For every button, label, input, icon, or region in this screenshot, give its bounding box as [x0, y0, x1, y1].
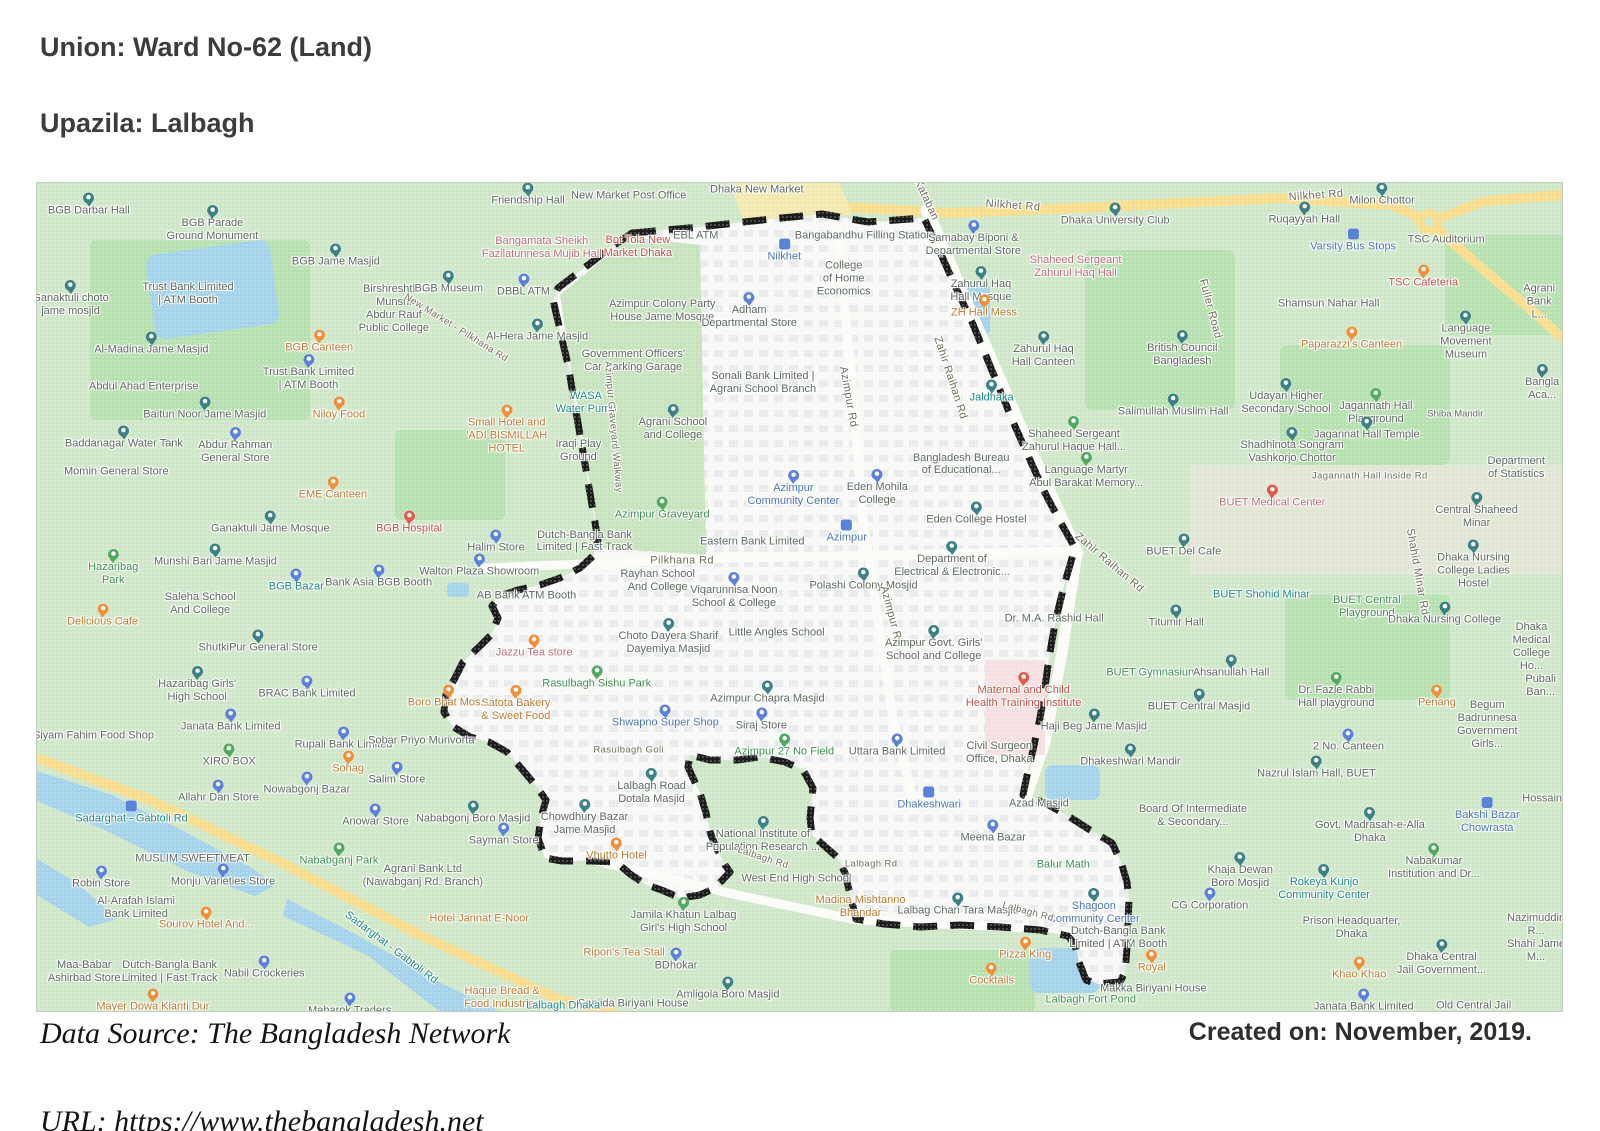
- map-label: Jaldhaka: [970, 379, 1014, 404]
- map-label: AB Bank ATM Booth: [477, 590, 576, 603]
- map-label: Kataban: [911, 183, 941, 222]
- map-label-text: Madina Mishtanno Bhandar: [816, 894, 906, 920]
- map-label: BGB Parade Ground Monument: [167, 205, 259, 243]
- map-label: Bangamata Sheikh Fazilatunnesa Mujib Hal…: [482, 235, 602, 261]
- map-label: Polashi Colony Mosjid: [809, 568, 917, 593]
- map-label: Dhaka University Club: [1061, 203, 1170, 228]
- map-label: Udayan Higher Secondary School: [1241, 378, 1330, 416]
- map-label-text: Agrani Bank Ltd (Nawabganj Rd. Branch): [363, 863, 483, 889]
- map-label: Nazrul Islam Hall, BUET: [1257, 755, 1376, 780]
- poi-pin-icon: [1287, 427, 1298, 438]
- poi-pin-icon: [213, 779, 224, 790]
- poi-pin-icon: [303, 354, 314, 365]
- map-label: West End High School: [742, 873, 852, 886]
- poi-pin-icon: [1267, 484, 1278, 495]
- map-label: Saleha School And College: [165, 591, 236, 617]
- poi-pin-icon: [314, 329, 325, 340]
- map-label: Little Angles School: [729, 627, 825, 640]
- map-label: Mayer Dowa Klanti Dur: [96, 989, 209, 1011]
- transit-badge-icon: [841, 519, 852, 530]
- poi-pin-icon: [373, 565, 384, 576]
- map-label: XIRO BOX: [203, 743, 256, 768]
- map-label: Jazzu Tea store: [496, 634, 573, 659]
- map-label: Sayman Store: [469, 822, 539, 847]
- map-label: Ganaktuli Jame Mosque: [211, 511, 330, 536]
- map-label-text: Small Hotel and 'ADI BISMILLAH HOTEL: [466, 416, 547, 455]
- map-label-text: Azimpur: [827, 531, 867, 544]
- map-label: Shagoon Community Center: [1048, 888, 1140, 926]
- map-label: Government Officers' Car Parking Garage: [582, 348, 685, 374]
- map-label-text: Shamsun Nahar Hall: [1278, 297, 1380, 310]
- map-label: Rokeya Kunjo Community Center: [1278, 864, 1370, 902]
- poi-pin-icon: [265, 511, 276, 522]
- map-label-text: Department of Statistics: [1488, 455, 1545, 481]
- map-label: Lalbagh Fort Pond: [1046, 994, 1137, 1007]
- poi-pin-icon: [532, 319, 543, 330]
- map-label: Bangla Aca...: [1525, 364, 1559, 402]
- map-label-text: Hotel Jannat E-Noor: [429, 913, 529, 926]
- poi-pin-icon: [968, 220, 979, 231]
- map-label: Friendship Hall: [491, 183, 564, 208]
- map-label: Bot Tola New Market Dhaka: [604, 234, 672, 260]
- map-label-text: Dr. M.A. Rashid Hall: [1005, 612, 1104, 625]
- map-label: Zahurul Haq Hall Canteen: [1012, 331, 1076, 369]
- poi-pin-icon: [1088, 709, 1099, 720]
- map-label: 2 No. Canteen: [1313, 729, 1384, 754]
- poi-pin-icon: [1346, 327, 1357, 338]
- poi-pin-icon: [370, 803, 381, 814]
- map-label: Shadhinota Songram Vashkorjo Chottor: [1240, 427, 1343, 465]
- map-label-text: Shiba Mandir: [1427, 408, 1483, 419]
- map-label: Bangladesh Bureau of Educational...: [913, 452, 1010, 478]
- poi-pin-icon: [670, 948, 681, 959]
- map-label-text: EBL ATM: [673, 230, 718, 243]
- map-label: Rasulbagh Goli: [593, 745, 664, 756]
- map-label: College of Home Economics: [817, 260, 871, 299]
- source-block: Data Source: The Bangladesh Network URL:…: [40, 1012, 511, 1131]
- map-label: Agrani Bank Ltd (Nawabganj Rd. Branch): [363, 863, 483, 889]
- map-label-text: Nilkhet: [767, 250, 801, 263]
- map-label-text: Bangladesh Bureau of Educational...: [913, 452, 1010, 478]
- map-label-text: Sadarghat - Gabtoli Rd: [342, 909, 440, 987]
- map-label: Bangabandhu Filling Station: [795, 230, 933, 243]
- poi-pin-icon: [1068, 416, 1079, 427]
- poi-pin-icon: [96, 865, 107, 876]
- map-label-text: AB Bank ATM Booth: [477, 590, 576, 603]
- map-label-text: Bangamata Sheikh Fazilatunnesa Mujib Hal…: [482, 235, 602, 261]
- map-label-text: Trust Bank Limited | ATM Booth: [142, 281, 233, 307]
- poi-pin-icon: [225, 709, 236, 720]
- map-label-text: Pubali Ban...: [1525, 673, 1556, 699]
- poi-pin-icon: [892, 734, 903, 745]
- map-label: BGB Darbar Hall: [48, 192, 130, 217]
- map-label: Azimpur: [827, 519, 867, 544]
- map-label: BRAC Bank Limited: [258, 676, 355, 701]
- map-label-text: Rayhan School And College: [620, 568, 695, 594]
- map-label-text: Maa-Babar Ashirbad Store: [48, 959, 121, 985]
- map-label: Hossain...: [1522, 793, 1562, 806]
- poi-pin-icon: [301, 676, 312, 687]
- map-label: Azimpur Colony Party House Jame Mosque: [609, 298, 715, 324]
- poi-pin-icon: [218, 864, 229, 875]
- poi-pin-icon: [201, 907, 212, 918]
- map-label: Language Movement Museum: [1418, 311, 1514, 362]
- poi-pin-icon: [1331, 672, 1342, 683]
- map-label: Choto Dayera Sharif Dayemiya Masjid: [619, 618, 719, 656]
- map-label-text: Azimpur Colony Party House Jame Mosque: [609, 298, 715, 324]
- map-label: Lalbag Chan Tara Masjid: [897, 893, 1018, 918]
- poi-pin-icon: [65, 280, 76, 291]
- map-label-text: New Market Post Office: [571, 190, 686, 203]
- map-label: Dhaka Medical College Ho...: [1513, 621, 1551, 673]
- poi-pin-icon: [953, 893, 964, 904]
- map-label: Siyam Fahim Food Shop: [37, 730, 154, 743]
- map-label: Shwapno Super Shop: [612, 705, 719, 730]
- map-label-text: Jagannath Hall Inside Rd: [1312, 471, 1428, 482]
- map-label-text: College of Home Economics: [817, 260, 871, 299]
- map-label: Sadarghat - Gabtoli Rd: [342, 909, 440, 987]
- map-label: Lalbagh Dhaka: [526, 1000, 600, 1011]
- map-label: Munshi Bari Jame Masjid: [154, 544, 277, 569]
- poi-pin-icon: [510, 685, 521, 696]
- map-label: Dhaka Central Jail Government...: [1397, 939, 1486, 977]
- poi-pin-icon: [1436, 939, 1447, 950]
- poi-pin-icon: [443, 685, 454, 696]
- poi-pin-icon: [1194, 689, 1205, 700]
- map-label-text: Ripon's Tea Stall: [583, 947, 664, 960]
- poi-pin-icon: [404, 511, 415, 522]
- poi-pin-icon: [333, 842, 344, 853]
- map-label: Monju Varieties Store: [171, 864, 275, 889]
- map-label: Nazimuddin R... Shahi Jame M...: [1507, 912, 1562, 964]
- poi-pin-icon: [147, 989, 158, 1000]
- poi-pin-icon: [762, 681, 773, 692]
- map-label: Azimpur Graveyard: [615, 497, 710, 522]
- map-label: Adham Departmental Store: [701, 292, 796, 330]
- poi-pin-icon: [744, 292, 755, 303]
- map-label: Khao Khao: [1332, 956, 1386, 981]
- map-label-text: Old Central Jail: [1436, 1000, 1511, 1011]
- poi-pin-icon: [1343, 729, 1354, 740]
- poi-pin-icon: [1110, 203, 1121, 214]
- map-label: Maa-Babar Ashirbad Store: [48, 959, 121, 985]
- poi-pin-icon: [1418, 265, 1429, 276]
- map-label-text: Civil Surgeon Office, Dhaka: [966, 741, 1032, 767]
- map-label: Pizza King: [999, 936, 1051, 961]
- map-label: Viqarunnisa Noon School & College: [690, 572, 777, 610]
- map-label: Eden Mohila College: [847, 469, 908, 507]
- poi-pin-icon: [975, 266, 986, 277]
- map-label: BGB Museum: [415, 271, 483, 296]
- map-label: Pilkhana Rd: [650, 555, 714, 568]
- poi-pin-icon: [529, 634, 540, 645]
- map-label: Shamsun Nahar Hall: [1278, 297, 1380, 310]
- map-label: Department of Statistics: [1488, 455, 1545, 481]
- map-canvas[interactable]: BGB Darbar HallBGB Parade Ground Monumen…: [37, 183, 1562, 1011]
- map-label: ShutkiPur General Store: [199, 629, 318, 654]
- map-label-text: Zahir Raihan Rd: [931, 335, 970, 421]
- map-label-text: Azad Masjid: [1009, 798, 1069, 811]
- poi-pin-icon: [858, 568, 869, 579]
- map-label: Jagannath Hall Inside Rd: [1312, 471, 1428, 482]
- map-label-text: Lalbagh Rd: [845, 859, 898, 870]
- poi-pin-icon: [1428, 843, 1439, 854]
- map-label: Samabay Biponi & Departmental Store: [926, 220, 1021, 258]
- map-label: Nabil Crockeries: [224, 955, 305, 980]
- poi-pin-icon: [986, 963, 997, 974]
- map-label-text: Bot Tola New Market Dhaka: [604, 234, 672, 260]
- map-label: Prison Headquarter, Dhaka: [1303, 915, 1401, 941]
- map-label: National Institute of Population Researc…: [706, 816, 820, 854]
- map-label: Jamila Khatun Lalbag Girl's High School: [631, 897, 737, 935]
- map-label: Cocktails: [969, 963, 1014, 988]
- map-label-text: Prison Headquarter, Dhaka: [1303, 915, 1401, 941]
- map-label: Dhaka New Market: [710, 184, 804, 197]
- map-label: Titumir Hall: [1149, 604, 1204, 629]
- poi-pin-icon: [663, 618, 674, 629]
- poi-pin-icon: [330, 243, 341, 254]
- map-label-text: Hossain...: [1522, 793, 1562, 806]
- map-label: ZH Hall Mess: [951, 295, 1017, 320]
- poi-pin-icon: [779, 734, 790, 745]
- poi-pin-icon: [391, 762, 402, 773]
- poi-pin-icon: [667, 404, 678, 415]
- poi-pin-icon: [979, 295, 990, 306]
- map-label-text: Eastern Bank Limited: [700, 535, 805, 548]
- map-label: Bakshi Bazar Chowrasta: [1450, 797, 1525, 835]
- map-label: Central Shaheed Minar: [1434, 492, 1519, 530]
- map-label-text: Sadarghat - Gabtoli Rd: [75, 813, 188, 826]
- map-label-text: Rasulbagh Goli: [593, 745, 664, 756]
- map-label: Ripon's Tea Stall: [583, 947, 664, 960]
- poi-pin-icon: [1377, 183, 1388, 194]
- map-label: Hazaribag Park: [88, 549, 138, 587]
- poi-pin-icon: [210, 544, 221, 555]
- map-label: Anowar Store: [342, 803, 409, 828]
- map-labels-layer: BGB Darbar HallBGB Parade Ground Monumen…: [37, 183, 1562, 1011]
- poi-pin-icon: [230, 427, 241, 438]
- map-label: Salimullah Muslim Hall: [1118, 393, 1229, 418]
- poi-pin-icon: [660, 705, 671, 716]
- poi-pin-icon: [1364, 807, 1375, 818]
- map-label: Robin Store: [72, 865, 130, 890]
- poi-pin-icon: [591, 666, 602, 677]
- map-label: Lalbagh Rd: [845, 859, 898, 870]
- poi-pin-icon: [788, 470, 799, 481]
- map-label-text: West End High School: [742, 873, 852, 886]
- map-label-text: Bakshi Bazar Chowrasta: [1450, 809, 1525, 835]
- created-on-line: Created on: November, 2019.: [1189, 1018, 1532, 1047]
- poi-pin-icon: [1280, 378, 1291, 389]
- map-label: Pubali Ban...: [1525, 673, 1556, 699]
- poi-pin-icon: [338, 726, 349, 737]
- poi-pin-icon: [872, 469, 883, 480]
- map-label: Abdur Rahman General Store: [198, 427, 272, 465]
- poi-pin-icon: [327, 477, 338, 488]
- map-label-text: Board Of Intermediate & Secondary...: [1139, 803, 1247, 829]
- poi-pin-icon: [1354, 956, 1365, 967]
- poi-pin-icon: [83, 192, 94, 203]
- poi-pin-icon: [253, 629, 264, 640]
- map-label-text: Dhaka Medical College Ho...: [1513, 621, 1551, 673]
- map-label-text: Bangabandhu Filling Station: [795, 230, 933, 243]
- map-label: Board Of Intermediate & Secondary...: [1139, 803, 1247, 829]
- map-label: Ahsanullah Hall: [1193, 654, 1269, 679]
- map-label: Boro Bhat Mos...: [408, 685, 490, 710]
- url-line: URL: https://www.thebangladesh.net: [40, 1105, 484, 1131]
- map-label: Agrani School and College: [639, 404, 708, 442]
- map-label: TSC Auditorium: [1408, 234, 1485, 247]
- map-label-text: Balur Math: [1037, 859, 1090, 872]
- poi-pin-icon: [722, 977, 733, 988]
- map-label: Civil Surgeon Office, Dhaka: [966, 741, 1032, 767]
- map-label: Govt. Madrasah-e-Alia Dhaka: [1315, 807, 1425, 845]
- poi-pin-icon: [579, 799, 590, 810]
- map-label: Azimpur Rd: [837, 366, 860, 429]
- map-label-text: Dutch-Bangla Bank Limited | Fast Track: [122, 959, 218, 985]
- poi-pin-icon: [474, 554, 485, 565]
- map-label-text: Siyam Fahim Food Shop: [37, 730, 154, 743]
- map-label: Bank Asia BGB Booth: [325, 565, 432, 590]
- map-label: Al-Hera Jame Masjid: [486, 319, 588, 344]
- map-label: Sourov Hotel And...: [159, 907, 254, 932]
- poi-pin-icon: [646, 768, 657, 779]
- map-label: Ruqayyah Hall: [1268, 202, 1340, 227]
- map-label-text: Little Angles School: [729, 627, 825, 640]
- map-label: TSC Cafeteria: [1388, 265, 1458, 290]
- map-label: Azimpur Govt. Girls' School and College: [885, 625, 982, 663]
- map-label: Dhaka Nursing College Ladies Hostel: [1429, 539, 1517, 590]
- map-label: BUET Shohid Minar: [1213, 589, 1310, 602]
- map-label: BGB Canteen: [285, 329, 353, 354]
- map-label: Trust Bank Limited | ATM Booth: [142, 281, 233, 307]
- map-label: Uttara Bank Limited: [849, 734, 946, 759]
- poi-pin-icon: [1537, 364, 1548, 375]
- poi-pin-icon: [1468, 539, 1479, 550]
- map-label: Lalbagh Road Dotala Masjid: [617, 768, 686, 806]
- map-label: British Council Bangladesh: [1147, 330, 1217, 368]
- transit-badge-icon: [924, 787, 935, 798]
- poi-pin-icon: [1235, 852, 1246, 863]
- transit-badge-icon: [779, 238, 790, 249]
- map-label: Eden College Hostel: [926, 502, 1026, 527]
- poi-pin-icon: [1319, 864, 1330, 875]
- map-label: Niloy Food: [313, 397, 366, 422]
- poi-pin-icon: [946, 541, 957, 552]
- map-label: Eastern Bank Limited: [700, 535, 805, 548]
- map-label-text: Government Officers' Car Parking Garage: [582, 348, 685, 374]
- map-label-text: Begum Badrunnesa Government Girls...: [1450, 699, 1525, 751]
- poi-pin-icon: [971, 502, 982, 513]
- poi-pin-icon: [118, 426, 129, 437]
- poi-pin-icon: [146, 331, 157, 342]
- poi-pin-icon: [491, 529, 502, 540]
- map-label: Dutch-Bangla Bank Limited | Fast Track: [537, 529, 633, 555]
- map-label-text: Nilkhet Rd: [985, 198, 1041, 215]
- poi-pin-icon: [333, 397, 344, 408]
- map-label: Ganaktuli choto jame mosjid: [37, 280, 109, 318]
- poi-pin-icon: [1226, 654, 1237, 665]
- map-label-text: Shaheed Sergeant Zahurul Haq Hall: [1030, 254, 1122, 280]
- transit-badge-icon: [1348, 228, 1359, 239]
- map-label-text: Momin General Store: [64, 465, 169, 478]
- map-label: Hotel Jannat E-Noor: [429, 913, 529, 926]
- page: Union: Ward No-62 (Land) Upazila: Lalbag…: [0, 0, 1600, 1131]
- map-label: Nowabgonj Bazar: [264, 772, 351, 797]
- map-label-text: Language Movement Museum: [1418, 323, 1514, 362]
- map-label-text: Lalbagh Fort Pond: [1046, 994, 1137, 1007]
- map-label: Varsity Bus Stops: [1310, 228, 1396, 253]
- map-label: Old Central Jail: [1436, 1000, 1511, 1011]
- map-label: Chowdhury Bazar Jame Masjid: [541, 799, 628, 837]
- map-label-text: Pilkhana Rd: [650, 555, 714, 568]
- poi-pin-icon: [108, 549, 119, 560]
- map-label: Madina Mishtanno Bhandar: [816, 894, 906, 920]
- map-label: Shaheed Sergeant Zahurul Haque Hall...: [1022, 416, 1126, 454]
- map-label: Trust Bank Limited | ATM Booth: [263, 354, 354, 392]
- map-label: Momin General Store: [64, 465, 169, 478]
- map-label: Dhakeshwari Mandir: [1080, 743, 1180, 768]
- poi-pin-icon: [928, 625, 939, 636]
- map-label: Baddanagar Water Tank: [65, 426, 183, 451]
- poi-pin-icon: [757, 816, 768, 827]
- map-label-text: BUET Shohid Minar: [1213, 589, 1310, 602]
- map-label: Sobar Priyo Murivorta: [368, 735, 474, 748]
- map-label: Shiba Mandir: [1427, 408, 1483, 419]
- map-label: Milon Chottor: [1349, 183, 1414, 208]
- poi-pin-icon: [1204, 888, 1215, 899]
- map-label-text: Sonali Bank Limited | Agrani School Bran…: [710, 370, 816, 396]
- map-label: Royal: [1138, 950, 1166, 975]
- map-label: Azimpur Graveyard Walkway: [602, 361, 625, 494]
- poi-pin-icon: [728, 572, 739, 583]
- poi-pin-icon: [199, 397, 210, 408]
- map-label: DBBL ATM: [497, 273, 550, 298]
- map-label: Maharok Traders: [308, 993, 391, 1011]
- map-label: CG Corporation: [1171, 888, 1248, 913]
- map-label: Sonali Bank Limited | Agrani School Bran…: [710, 370, 816, 396]
- upazila-line: Upazila: Lalbagh: [40, 108, 255, 138]
- map-label: Sadarghat - Gabtoli Rd: [75, 801, 188, 826]
- data-source-line: Data Source: The Bangladesh Network: [40, 1017, 511, 1050]
- map-label-text: Azimpur Graveyard Walkway: [602, 361, 625, 494]
- poi-pin-icon: [259, 955, 270, 966]
- poi-pin-icon: [1471, 492, 1482, 503]
- map-label: Azimpur Community Center: [748, 470, 840, 508]
- poi-pin-icon: [1088, 888, 1099, 899]
- map-label: Language Martyr Abul Barakat Memory...: [1029, 452, 1143, 490]
- map-label: Rasulbagh Sishu Park: [542, 666, 651, 691]
- map-label: Azad Masjid: [1009, 798, 1069, 811]
- poi-pin-icon: [1081, 452, 1092, 463]
- map-label-text: Nazimuddin R... Shahi Jame M...: [1507, 912, 1562, 964]
- poi-pin-icon: [986, 379, 997, 390]
- map-label-text: Azimpur Rd: [837, 366, 860, 429]
- poi-pin-icon: [1038, 331, 1049, 342]
- map-label-text: Dutch-Bangla Bank Limited | ATM Booth: [1069, 925, 1167, 951]
- transit-badge-icon: [1482, 797, 1493, 808]
- poi-pin-icon: [657, 497, 668, 508]
- poi-pin-icon: [468, 801, 479, 812]
- poi-pin-icon: [678, 897, 689, 908]
- poi-pin-icon: [291, 569, 302, 580]
- map-label: Khaja Dewan Boro Mosjid: [1208, 852, 1273, 890]
- map-label-text: Dhaka New Market: [710, 184, 804, 197]
- poi-pin-icon: [301, 772, 312, 783]
- map-label: Azimpur 27 No Field: [734, 734, 834, 759]
- map-label: Delicious Cafe: [67, 604, 138, 629]
- poi-pin-icon: [523, 183, 534, 194]
